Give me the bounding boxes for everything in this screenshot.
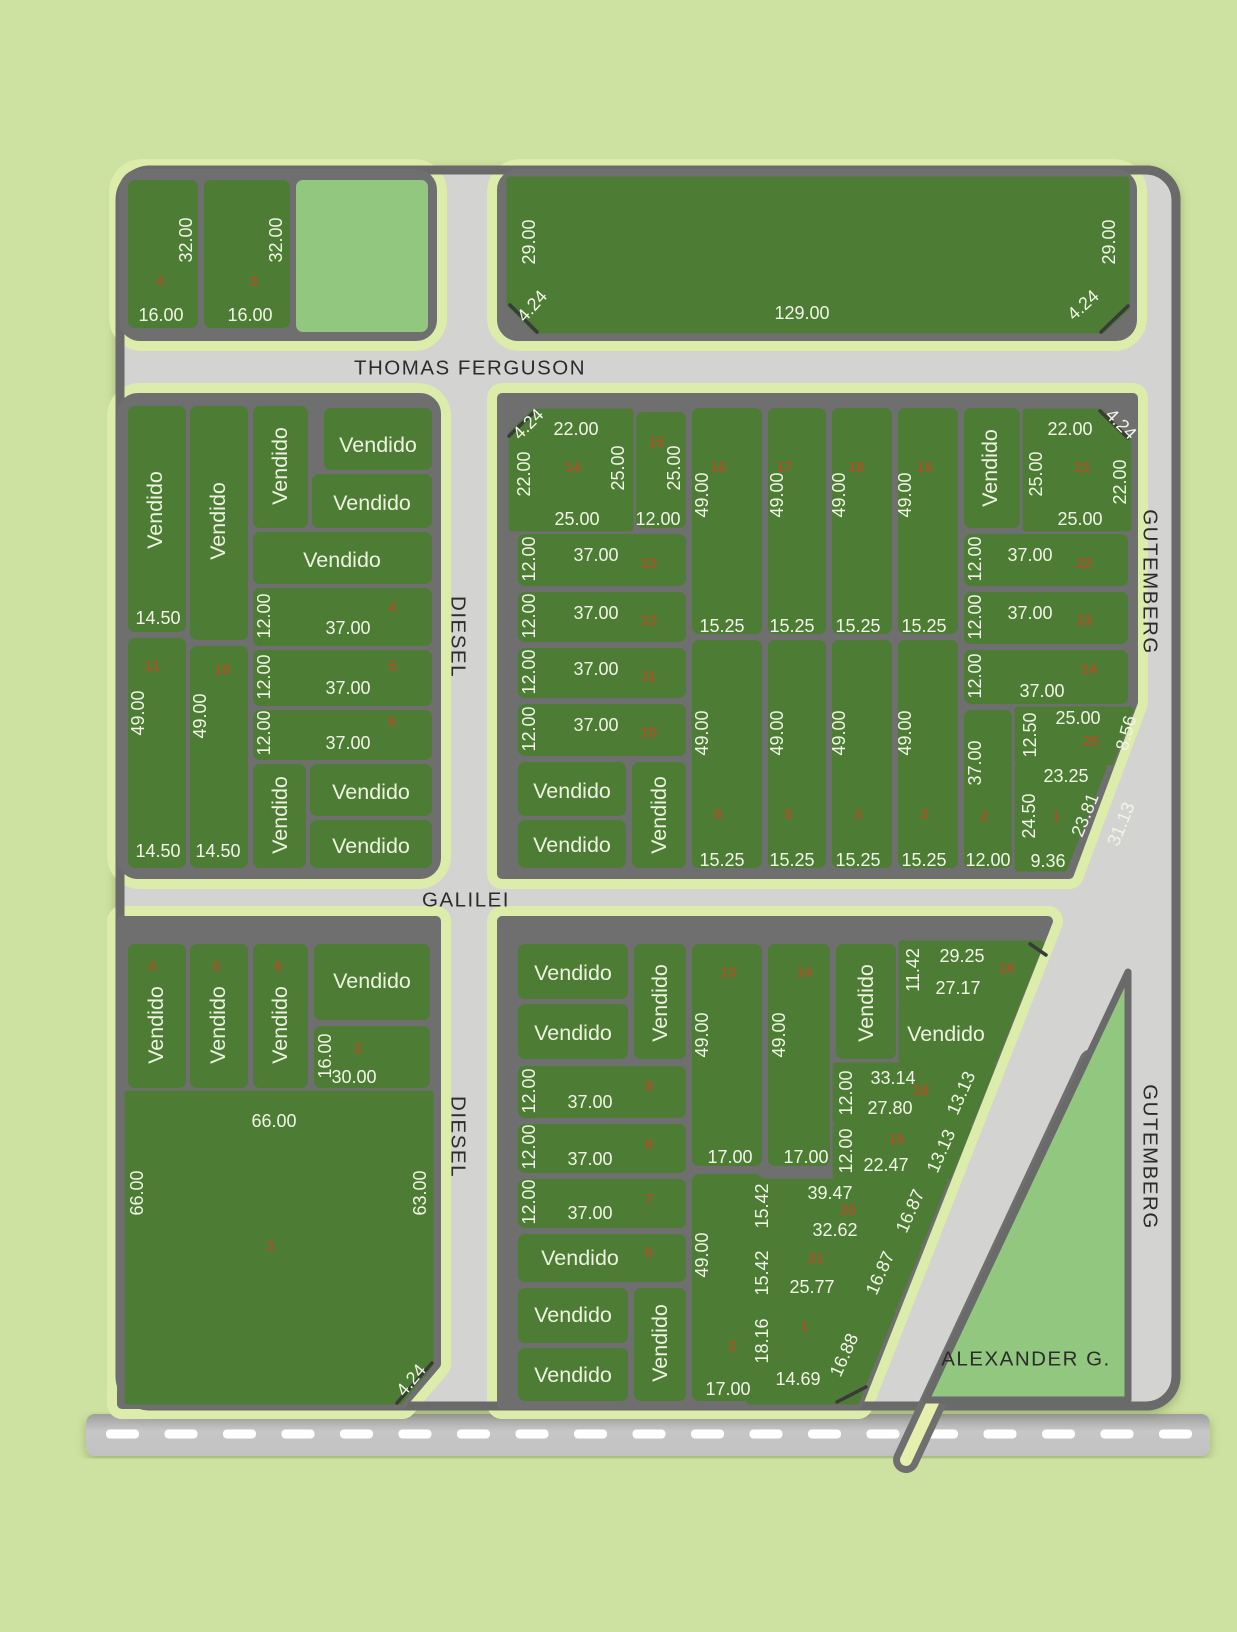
lot-number-label: 5 — [388, 659, 396, 675]
lot-dimension-label: 49.00 — [829, 710, 849, 755]
vendido-label: Vendido — [303, 548, 381, 572]
lot-dimension-label: 37.00 — [1019, 681, 1064, 701]
lot-number-label: 16 — [999, 961, 1015, 977]
lot-shape — [964, 710, 1012, 868]
road-center-dash — [399, 1430, 432, 1439]
lot-dimension-label: 37.00 — [325, 618, 370, 638]
lot-dimension-label: 49.00 — [190, 693, 210, 738]
lot-dimension-label: 16.00 — [227, 305, 272, 325]
lot-dimension-label: 24.50 — [1019, 793, 1039, 838]
lot-dimension-label: 33.14 — [870, 1068, 915, 1088]
lot-shape — [296, 180, 428, 332]
lot-dimension-label: 25.00 — [1026, 451, 1046, 496]
vendido-label: Vendido — [648, 1304, 672, 1382]
lot-number-label: 5 — [212, 959, 220, 975]
lot-shape — [128, 1094, 430, 1401]
lot-dimension-label: 16.00 — [138, 305, 183, 325]
vendido-label: Vendido — [648, 964, 672, 1042]
vendido-label: Vendido — [144, 986, 168, 1064]
road-center-dash — [106, 1430, 139, 1439]
lot-dimension-label: 22.47 — [863, 1155, 908, 1175]
lot-dimension-label: 25.77 — [789, 1277, 834, 1297]
lot-number-label: 21 — [808, 1251, 824, 1267]
lot-dimension-label: 12.00 — [254, 710, 274, 755]
lot-dimension-label: 12.00 — [254, 593, 274, 638]
vendido-label: Vendido — [332, 780, 410, 804]
road-center-dash — [223, 1430, 256, 1439]
lot-dimension-label: 23.25 — [1043, 766, 1088, 786]
lot-dimension-label: 12.00 — [254, 654, 274, 699]
lot-number-label: 4 — [388, 600, 396, 616]
lot-dimension-label: 49.00 — [767, 710, 787, 755]
lot-number-label: 4 — [148, 959, 156, 975]
lot-dimension-label: 25.00 — [1055, 708, 1100, 728]
lot-number-label: 19 — [888, 1132, 904, 1148]
lot-number-label: 18 — [913, 1083, 929, 1099]
lot-number-label: 11 — [144, 659, 159, 675]
lot-number-label: 3 — [920, 807, 928, 823]
lot-dimension-label: 49.00 — [829, 472, 849, 517]
lot-dimension-label: 30.00 — [331, 1067, 376, 1087]
lot-dimension-label: 37.00 — [573, 603, 618, 623]
lot-dimension-label: 15.25 — [901, 616, 946, 636]
vendido-label: Vendido — [647, 776, 671, 854]
road-center-dash — [691, 1430, 724, 1439]
lot-dimension-label: 49.00 — [895, 710, 915, 755]
lot-dimension-label: 37.00 — [567, 1203, 612, 1223]
lot-dimension-label: 15.25 — [699, 616, 744, 636]
lot-dimension-label: 37.00 — [573, 715, 618, 735]
lot-dimension-label: 37.00 — [573, 659, 618, 679]
street-name-label: GALILEI — [422, 889, 510, 912]
lot-number-label: 6 — [274, 959, 282, 975]
lot-dimension-label: 12.00 — [519, 536, 539, 581]
lot-number-label: 5 — [250, 274, 258, 290]
lot-dimension-label: 15.42 — [752, 1183, 772, 1228]
lot-shape — [898, 408, 958, 634]
lot-dimension-label: 17.00 — [783, 1147, 828, 1167]
lot-number-label: 25 — [1083, 734, 1099, 750]
lot-number-label: 4 — [854, 807, 862, 823]
road-center-dash — [340, 1430, 373, 1439]
lot-dimension-label: 12.00 — [519, 1068, 539, 1113]
lot-number-label: 14 — [796, 965, 812, 981]
road-center-dash — [984, 1430, 1017, 1439]
lot-dimension-label: 12.00 — [519, 649, 539, 694]
lot-number-label: 23 — [1076, 613, 1092, 629]
road-center-dash — [282, 1430, 315, 1439]
street-name-label: ALEXANDER G. — [941, 1348, 1111, 1371]
lot-dimension-label: 15.25 — [901, 850, 946, 870]
vendido-label: Vendido — [339, 433, 417, 457]
lot-dimension-label: 12.00 — [519, 706, 539, 751]
subdivision-map-canvas: 32.0016.00432.0016.00529.0029.00129.004.… — [40, 16, 1237, 1616]
lot-dimension-label: 66.00 — [251, 1111, 296, 1131]
vendido-label: Vendido — [333, 969, 411, 993]
lot-dimension-label: 49.00 — [692, 1012, 712, 1057]
lot-dimension-label: 49.00 — [692, 472, 712, 517]
lot-dimension-label: 25.00 — [664, 445, 684, 490]
lot-dimension-label: 29.00 — [519, 219, 539, 264]
lot-shape — [768, 408, 826, 634]
lot-dimension-label: 12.50 — [1020, 712, 1040, 757]
vendido-label: Vendido — [206, 986, 230, 1064]
street-name-label: DIESEL — [447, 1096, 470, 1178]
lot-number-label: 4 — [156, 274, 164, 290]
lot-dimension-label: 15.25 — [835, 850, 880, 870]
lot-number-label: 6 — [388, 714, 396, 730]
lot-number-label: 7 — [645, 1192, 653, 1208]
vendido-label: Vendido — [534, 961, 612, 985]
lot-dimension-label: 37.00 — [567, 1092, 612, 1112]
lot-dimension-label: 14.50 — [195, 841, 240, 861]
lot-dimension-label: 49.00 — [692, 710, 712, 755]
street-name-label: THOMAS FERGUSON — [354, 357, 586, 380]
lot-number-label: 19 — [916, 460, 932, 476]
lot-dimension-label: 15.25 — [769, 616, 814, 636]
lot-dimension-label: 12.00 — [519, 1179, 539, 1224]
lot-dimension-label: 12.00 — [965, 653, 985, 698]
lot-number-label: 16 — [710, 460, 726, 476]
lot-dimension-label: 25.00 — [608, 445, 628, 490]
lot-number-label: 11 — [641, 669, 656, 685]
lot-dimension-label: 12.00 — [836, 1070, 856, 1115]
street-name-label: GUTEMBERG — [1139, 509, 1162, 655]
lot-dimension-label: 22.00 — [1047, 419, 1092, 439]
road-center-dash — [1042, 1430, 1075, 1439]
lot-dimension-label: 15.25 — [699, 850, 744, 870]
lot-number-label: 21 — [1075, 460, 1091, 476]
vendido-label: Vendido — [541, 1246, 619, 1270]
lot-number-label: 24 — [1081, 662, 1097, 678]
vendido-label: Vendido — [907, 1022, 985, 1046]
lot-dimension-label: 14.69 — [775, 1369, 820, 1389]
lot-dimension-label: 22.00 — [514, 451, 534, 496]
road-center-dash — [1101, 1430, 1134, 1439]
lot-dimension-label: 25.00 — [1057, 509, 1102, 529]
vendido-label: Vendido — [978, 429, 1002, 507]
lot-dimension-label: 22.00 — [553, 419, 598, 439]
lot-dimension-label: 15.25 — [769, 850, 814, 870]
lot-number-label: 1 — [1052, 809, 1060, 825]
lot-dimension-label: 37.00 — [573, 545, 618, 565]
street-name-label: DIESEL — [447, 596, 470, 678]
lot-number-label: 6 — [645, 1245, 653, 1261]
lot-number-label: 15 — [648, 435, 664, 451]
road-center-dash — [1159, 1430, 1192, 1439]
lot-dimension-label: 11.42 — [903, 948, 923, 992]
lot-dimension-label: 9.36 — [1030, 851, 1065, 871]
lot-dimension-label: 12.00 — [965, 850, 1010, 870]
lot-dimension-label: 63.00 — [410, 1170, 430, 1215]
lot-dimension-label: 49.00 — [895, 472, 915, 517]
lot-dimension-label: 25.00 — [554, 509, 599, 529]
lot-dimension-label: 37.00 — [1007, 603, 1052, 623]
lot-number-label: 3 — [266, 1239, 274, 1255]
lot-dimension-label: 12.00 — [965, 536, 985, 581]
lot-number-label: 2 — [980, 809, 988, 825]
lot-dimension-label: 27.80 — [867, 1098, 912, 1118]
lot-number-label: 5 — [784, 807, 792, 823]
lot-dimension-label: 15.25 — [835, 616, 880, 636]
lot-dimension-label: 66.00 — [127, 1170, 147, 1215]
lot-dimension-label: 37.00 — [567, 1149, 612, 1169]
lot-number-label: 22 — [1076, 556, 1092, 572]
lot-dimension-label: 12.00 — [965, 594, 985, 639]
lot-shape — [190, 646, 248, 868]
vendido-label: Vendido — [854, 964, 878, 1042]
lot-dimension-label: 49.00 — [692, 1232, 712, 1277]
lot-number-label: 10 — [641, 725, 657, 741]
lot-dimension-label: 12.00 — [836, 1128, 856, 1173]
lot-dimension-label: 32.62 — [812, 1220, 857, 1240]
vendido-label: Vendido — [206, 482, 230, 560]
lot-dimension-label: 49.00 — [769, 1012, 789, 1057]
lot-number-label: 18 — [848, 460, 864, 476]
lot-number-label: 12 — [641, 613, 657, 629]
lot-number-label: 13 — [641, 556, 657, 572]
road-center-dash — [516, 1430, 549, 1439]
lot-dimension-label: 129.00 — [774, 303, 829, 323]
lot-dimension-label: 12.00 — [635, 509, 680, 529]
lot-dimension-label: 32.00 — [266, 217, 286, 262]
road-center-dash — [867, 1430, 900, 1439]
lot-shape — [692, 408, 762, 634]
lot-dimension-label: 17.00 — [705, 1379, 750, 1399]
lot-dimension-label: 15.42 — [752, 1250, 772, 1295]
lot-dimension-label: 17.00 — [707, 1147, 752, 1167]
lot-dimension-label: 14.50 — [135, 841, 180, 861]
lot-dimension-label: 49.00 — [128, 690, 148, 735]
lot-dimension-label: 37.00 — [1007, 545, 1052, 565]
lot-dimension-label: 12.00 — [519, 593, 539, 638]
lot-dimension-label: 29.25 — [939, 946, 984, 966]
lot-number-label: 13 — [720, 965, 736, 981]
vendido-label: Vendido — [268, 776, 292, 854]
road-center-dash — [165, 1430, 198, 1439]
lot-dimension-label: 37.00 — [965, 740, 985, 785]
lot-number-label: 14 — [565, 460, 581, 476]
lot-number-label: 10 — [214, 662, 230, 678]
lot-dimension-label: 22.00 — [1110, 459, 1130, 504]
road-center-dash — [574, 1430, 607, 1439]
lot-dimension-label: 39.47 — [807, 1183, 852, 1203]
lot-dimension-label: 27.17 — [935, 978, 980, 998]
lot-number-label: 9 — [645, 1079, 653, 1095]
road-center-dash — [633, 1430, 666, 1439]
street-name-label: GUTEMBERG — [1139, 1084, 1162, 1230]
lot-number-label: 8 — [645, 1137, 653, 1153]
vendido-label: Vendido — [534, 1021, 612, 1045]
vendido-label: Vendido — [533, 833, 611, 857]
vendido-label: Vendido — [143, 471, 167, 549]
lot-number-label: 1 — [800, 1319, 808, 1335]
road-center-dash — [457, 1430, 490, 1439]
vendido-label: Vendido — [534, 1363, 612, 1387]
lot-dimension-label: 18.16 — [752, 1318, 772, 1363]
road-center-dash — [750, 1430, 783, 1439]
lot-dimension-label: 29.00 — [1099, 219, 1119, 264]
vendido-label: Vendido — [533, 779, 611, 803]
lot-dimension-label: 12.00 — [519, 1124, 539, 1169]
lot-dimension-label: 14.50 — [135, 608, 180, 628]
lot-number-label: 2 — [728, 1339, 736, 1355]
vendido-label: Vendido — [534, 1303, 612, 1327]
lot-dimension-label: 37.00 — [325, 678, 370, 698]
lot-dimension-label: 49.00 — [767, 472, 787, 517]
vendido-label: Vendido — [333, 491, 411, 515]
lot-number-label: 20 — [840, 1203, 856, 1219]
lot-number-label: 2 — [354, 1041, 362, 1057]
road-center-dash — [808, 1430, 841, 1439]
lot-dimension-label: 37.00 — [325, 733, 370, 753]
vendido-label: Vendido — [268, 986, 292, 1064]
lot-dimension-label: 32.00 — [176, 217, 196, 262]
plat-map: 32.0016.00432.0016.00529.0029.00129.004.… — [40, 16, 1237, 1616]
vendido-label: Vendido — [268, 427, 292, 505]
lot-shape — [832, 408, 892, 634]
vendido-label: Vendido — [332, 834, 410, 858]
lot-number-label: 6 — [714, 807, 722, 823]
